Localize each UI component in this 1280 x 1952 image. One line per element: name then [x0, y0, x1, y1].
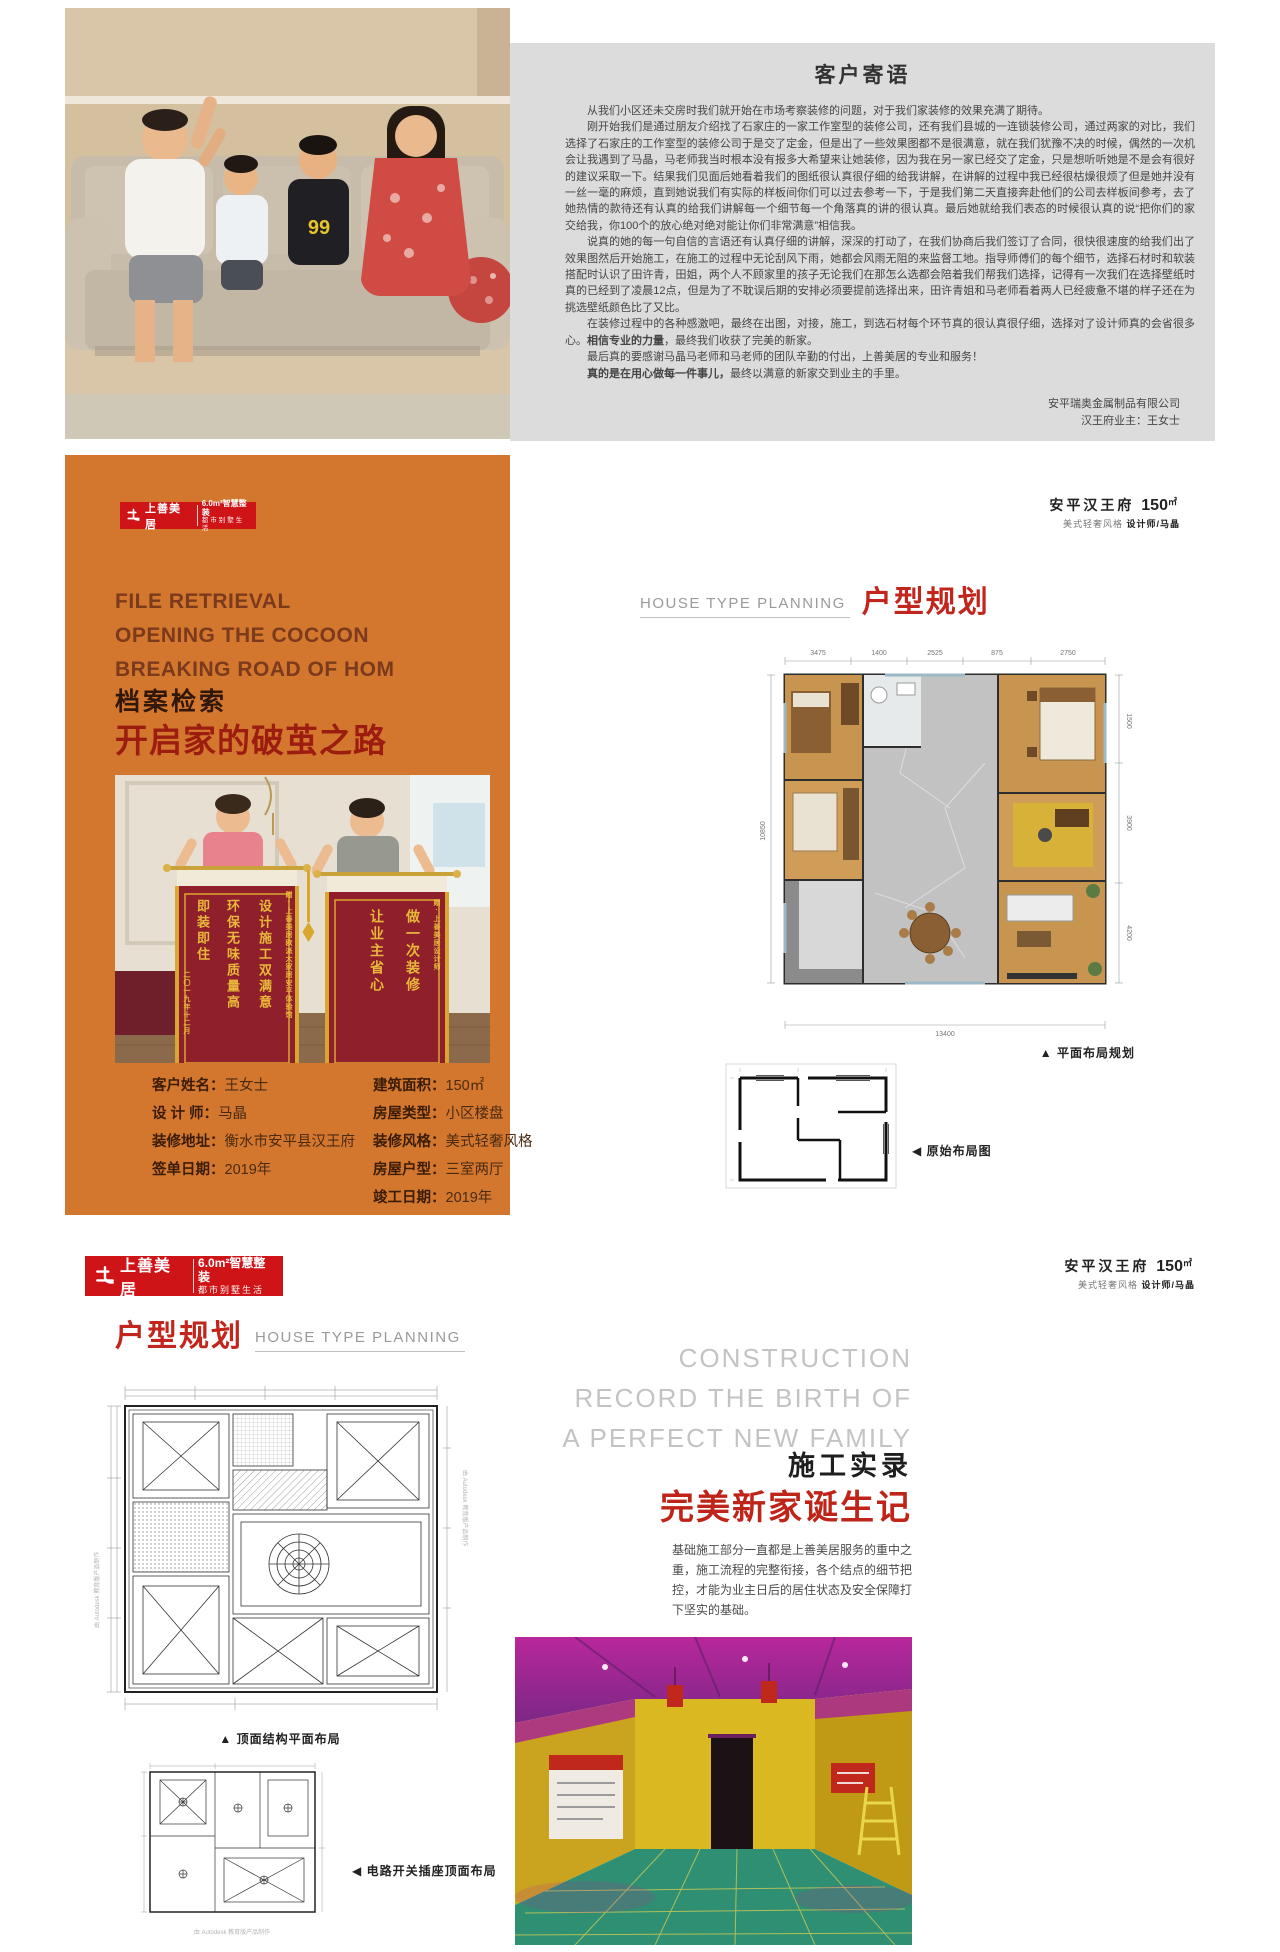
- sketch-caption: ◀ 原始布局图: [912, 1142, 992, 1159]
- sketch-windows: [756, 1076, 889, 1155]
- banner-divider: [193, 1259, 194, 1293]
- dim-label: 2750: [1060, 650, 1076, 657]
- paragraph: 真的是在用心做每一件事儿，最终以满意的新家交到业主的手里。: [565, 366, 1195, 382]
- brand-banner: 上善美居 6.0m²智慧整装 都市别墅生活: [120, 502, 256, 529]
- shangshanmeiju-logo-icon: [126, 508, 141, 523]
- electrical-cad-drawing: 由 Autodesk 教育版产品制作: [120, 1758, 345, 1948]
- ceiling-cad-drawing: 由 Autodesk 教育版产品制作 由 Autodesk 教育版产品制作: [85, 1378, 475, 1720]
- ceiling-light: [602, 1664, 608, 1670]
- site-sign-board: [549, 1755, 623, 1839]
- project-header: 安平汉王府 150㎡ 美式轻奢风格 设计师/马晶: [915, 1256, 1195, 1291]
- shirt-print-text: 99: [308, 217, 330, 239]
- info-row: 房屋户型：三室两厅: [373, 1156, 533, 1184]
- banner-divider: [197, 505, 198, 526]
- bold-phrase: 相信专业的力量: [587, 335, 664, 347]
- electrical-plan-caption: ◀ 电路开关插座顶面布局: [352, 1862, 497, 1879]
- paragraph: 从我们小区还未交房时我们就开始在市场考察装修的问题，对于我们家装修的效果充满了期…: [565, 103, 1195, 119]
- ceiling-plan-caption: ▲ 顶面结构平面布局: [85, 1730, 475, 1747]
- info-label: 客户姓名：: [152, 1078, 225, 1094]
- info-row: 设 计 师：马晶: [152, 1100, 367, 1128]
- project-style: 美式轻奢风格: [1063, 519, 1123, 529]
- dim-label: 13400: [935, 1031, 955, 1038]
- construction-title: 施工实录: [515, 1444, 912, 1483]
- construction-en-line: CONSTRUCTION: [515, 1338, 912, 1378]
- paragraph: 说真的她的每一句自信的言语还有认真仔细的讲解，深深的打动了，在我们协商后我们签订…: [565, 234, 1195, 316]
- planning-heading-cn: 户型规划: [115, 1322, 243, 1352]
- info-row: 装修风格：美式轻奢风格: [373, 1128, 533, 1156]
- cad-medallion: [269, 1534, 329, 1594]
- dim-label: 875: [991, 650, 1003, 657]
- dim-label: 1400: [871, 650, 887, 657]
- dim-label: 2525: [927, 650, 943, 657]
- info-value: 2019年: [225, 1162, 272, 1178]
- planning-heading-bottom: 户型规划 HOUSE TYPE PLANNING: [115, 1322, 465, 1352]
- shangshanmeiju-logo-icon: [94, 1265, 116, 1287]
- project-header: 安平汉王府 150㎡ 美式轻奢风格 设计师/马晶: [900, 495, 1180, 530]
- info-value: 衡水市安平县汉王府: [225, 1134, 356, 1150]
- desk-1: [841, 683, 859, 725]
- info-row: 竣工日期：2019年: [373, 1184, 533, 1212]
- brand-slogans: 6.0m²智慧整装 都市别墅生活: [202, 499, 250, 532]
- construction-headline-en: CONSTRUCTION RECORD THE BIRTH OF A PERFE…: [515, 1338, 912, 1458]
- right-pennant-dedication: 赠·上善美居设计师: [431, 899, 441, 971]
- coffee-table: [1017, 931, 1051, 947]
- dim-label: 4200: [1125, 925, 1132, 941]
- floorplan-caption: ▲ 平面布局规划: [975, 1044, 1135, 1061]
- slogan-line1: 6.0m²智慧整装: [198, 1257, 274, 1285]
- project-style: 美式轻奢风格: [1078, 1280, 1138, 1290]
- wall-trim: [65, 96, 510, 104]
- headline-en-line: OPENING THE COCOON: [115, 619, 395, 653]
- left-pennant-dedication: 赠·上善美居欧派大家居安平体验馆: [283, 891, 293, 1019]
- signature-company: 安平瑞奥金属制品有限公司: [510, 396, 1180, 413]
- left-pennant-col2: 环保无味质量高: [223, 899, 242, 1011]
- wardrobe: [843, 788, 859, 860]
- project-area-unit: ㎡: [1183, 1258, 1195, 1268]
- floorplan-drawing: 3475 1400 2525 875 2750 1500 3900 4200 1…: [755, 643, 1135, 1040]
- project-designer: 设计师/马晶: [1141, 1280, 1195, 1290]
- info-value: 美式轻奢风格: [446, 1134, 533, 1150]
- archive-headline-cn-big: 开启家的破茧之路: [115, 714, 387, 762]
- project-name: 安平汉王府: [1049, 497, 1134, 513]
- ecad-outer-wall: [150, 1772, 315, 1912]
- floor-reflection: [795, 1885, 912, 1913]
- autodesk-watermark: 由 Autodesk 教育版产品制作: [461, 1470, 469, 1546]
- planning-heading-en: HOUSE TYPE PLANNING: [255, 1329, 465, 1352]
- paragraph: 刚开始我们是通过朋友介绍找了石家庄的一家工作室型的装修公司，还有我们县城的一连锁…: [565, 119, 1195, 234]
- info-value: 2019年: [446, 1190, 493, 1206]
- project-area: 150: [1141, 497, 1168, 514]
- photo-floor: [65, 394, 510, 439]
- info-row: 签单日期：2019年: [152, 1156, 367, 1184]
- customer-message-panel: 客户寄语 从我们小区还未交房时我们就开始在市场考察装修的问题，对于我们家装修的效…: [510, 43, 1215, 441]
- message-title: 客户寄语: [510, 59, 1215, 89]
- construction-photo: [515, 1637, 912, 1945]
- brand-name: 上善美居: [120, 1252, 185, 1300]
- message-body: 从我们小区还未交房时我们就开始在市场考察装修的问题，对于我们家装修的效果充满了期…: [565, 103, 1195, 382]
- info-value: 小区楼盘: [446, 1106, 504, 1122]
- project-area-unit: ㎡: [1168, 497, 1180, 507]
- planning-heading-en: HOUSE TYPE PLANNING: [640, 595, 850, 618]
- planning-heading-cn: 户型规划: [862, 588, 990, 618]
- slogan-line1: 6.0m²智慧整装: [202, 499, 250, 517]
- plant: [1086, 884, 1100, 898]
- archive-headline-en: FILE RETRIEVAL OPENING THE COCOON BREAKI…: [115, 585, 395, 687]
- project-name: 安平汉王府: [1064, 1258, 1149, 1274]
- slogan-line2: 都市别墅生活: [202, 517, 250, 532]
- study-chair: [1038, 828, 1052, 842]
- sketch-ticks: [730, 1068, 886, 1180]
- tassel: [307, 870, 310, 922]
- pennant-photo: 赠·上善美居欧派大家居安平体验馆 设计施工双满意 环保无味质量高 即装即住 二〇…: [115, 775, 490, 1063]
- info-label: 装修地址：: [152, 1134, 225, 1150]
- paragraph-text: ，最终我们收获了完美的新家。: [664, 335, 818, 347]
- autodesk-watermark: 由 Autodesk 教育版产品制作: [194, 1928, 270, 1936]
- bold-phrase: 真的是在用心做每一件事儿，: [587, 368, 730, 380]
- info-row: 房屋类型：小区楼盘: [373, 1100, 533, 1128]
- project-area: 150: [1156, 1258, 1183, 1275]
- construction-en-line: RECORD THE BIRTH OF: [515, 1378, 912, 1418]
- brochure-page: { "brand_banner": { "logo_text": "上善美居",…: [0, 0, 1280, 1952]
- info-label: 装修风格：: [373, 1134, 446, 1150]
- sofa-plan: [1007, 895, 1073, 921]
- info-value: 王女士: [225, 1078, 269, 1094]
- info-row: 装修地址：衡水市安平县汉王府: [152, 1128, 367, 1156]
- project-style-line: 美式轻奢风格 设计师/马晶: [915, 1278, 1195, 1291]
- headline-en-line: FILE RETRIEVAL: [115, 585, 395, 619]
- ceiling-light: [742, 1656, 748, 1662]
- study-desk: [1055, 809, 1089, 827]
- info-row: 客户姓名：王女士: [152, 1072, 367, 1100]
- brand-slogans: 6.0m²智慧整装 都市别墅生活: [198, 1257, 274, 1295]
- slogan-line2: 都市别墅生活: [198, 1285, 274, 1295]
- kitchen-counter: [785, 880, 799, 983]
- red-sign: [831, 1763, 875, 1793]
- paragraph-text: 最终以满意的新家交到业主的手里。: [730, 368, 906, 380]
- color-floorplan: 3475 1400 2525 875 2750 1500 3900 4200 1…: [755, 643, 1135, 1040]
- info-label: 设 计 师：: [152, 1106, 218, 1122]
- project-style-line: 美式轻奢风格 设计师/马晶: [900, 517, 1180, 530]
- electrical-plan-cad: 由 Autodesk 教育版产品制作: [120, 1758, 345, 1950]
- info-label: 签单日期：: [152, 1162, 225, 1178]
- plant: [1088, 962, 1102, 976]
- info-value: 150㎡: [446, 1078, 485, 1094]
- ceiling-light: [842, 1662, 848, 1668]
- left-pennant-date: 二〇一九年十二月: [181, 971, 191, 1035]
- sketch-walls: [740, 1078, 886, 1180]
- bed-2: [793, 793, 837, 851]
- family-photo-illustration: 99: [65, 8, 510, 439]
- dim-label: 10850: [760, 821, 767, 841]
- dim-label: 3900: [1125, 815, 1132, 831]
- info-label: 竣工日期：: [373, 1190, 446, 1206]
- dim-label: 1500: [1125, 713, 1132, 729]
- paragraph: 在装修过程中的各种感激吧，最终在出图，对接，施工，到选石材每个环节真的很认真很仔…: [565, 316, 1195, 349]
- paragraph: 最后真的要感谢马晶马老师和马老师的团队辛勤的付出，上善美居的专业和服务！: [565, 349, 1195, 365]
- project-designer: 设计师/马晶: [1126, 519, 1180, 529]
- info-label: 房屋类型：: [373, 1106, 446, 1122]
- info-row: 建筑面积：150㎡: [373, 1072, 533, 1100]
- planning-heading: HOUSE TYPE PLANNING 户型规划: [640, 588, 990, 618]
- info-label: 建筑面积：: [373, 1078, 446, 1094]
- sketch-dim-frame: [726, 1064, 896, 1188]
- info-value: 马晶: [218, 1106, 247, 1122]
- dim-label: 3475: [810, 650, 826, 657]
- left-pennant-col3: 即装即住: [193, 899, 212, 963]
- info-label: 房屋户型：: [373, 1162, 446, 1178]
- signature: 安平瑞奥金属制品有限公司 汉王府业主：王女士: [510, 396, 1180, 430]
- construction-body: 基础施工部分一直都是上善美居服务的重中之重，施工流程的完整衔接，各个结点的细节把…: [672, 1540, 912, 1620]
- family-photo: 99: [65, 8, 510, 441]
- tv-screen: [433, 803, 485, 867]
- left-pennant-col1: 设计施工双满意: [255, 899, 274, 1011]
- signature-owner: 汉王府业主：王女士: [510, 413, 1180, 430]
- autodesk-watermark: 由 Autodesk 教育版产品制作: [93, 1552, 101, 1628]
- construction-photo-illustration: [515, 1637, 912, 1945]
- brand-banner: 上善美居 6.0m²智慧整装 都市别墅生活: [85, 1256, 283, 1296]
- project-name-line: 安平汉王府 150㎡: [915, 1256, 1195, 1276]
- project-name-line: 安平汉王府 150㎡: [900, 495, 1180, 515]
- doorway: [711, 1737, 753, 1849]
- floor-reflection: [515, 1881, 655, 1913]
- info-column-left: 客户姓名：王女士 设 计 师：马晶 装修地址：衡水市安平县汉王府 签单日期：20…: [152, 1072, 367, 1184]
- brand-name: 上善美居: [145, 500, 189, 532]
- original-layout-sketch: [718, 1058, 905, 1195]
- tv-cabinet: [1007, 973, 1077, 979]
- construction-subtitle: 完美新家诞生记: [515, 1480, 912, 1529]
- right-pennant-col2: 让业主省心: [367, 909, 387, 994]
- ceiling-plan-cad: 由 Autodesk 教育版产品制作 由 Autodesk 教育版产品制作: [85, 1378, 475, 1720]
- right-pennant-col1: 做一次装修: [403, 909, 423, 994]
- info-column-right: 建筑面积：150㎡ 房屋类型：小区楼盘 装修风格：美式轻奢风格 房屋户型：三室两…: [373, 1072, 533, 1212]
- sink: [897, 683, 915, 695]
- toilet: [871, 687, 887, 703]
- archive-headline-cn-small: 档案检索: [115, 682, 227, 718]
- sketch-drawing: [718, 1058, 905, 1195]
- info-value: 三室两厅: [446, 1162, 504, 1178]
